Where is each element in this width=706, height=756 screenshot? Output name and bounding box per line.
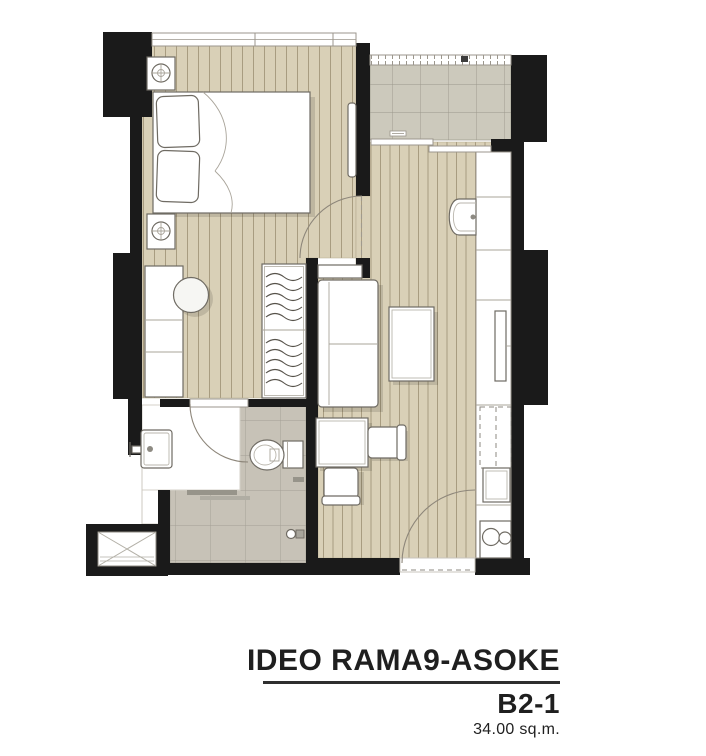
double-bed (153, 92, 315, 217)
window-band (152, 33, 356, 46)
dining-chair (322, 468, 364, 505)
kitchen-sink (449, 199, 476, 235)
coffee-table (389, 307, 438, 385)
wall-right-strip (511, 142, 524, 558)
nightstand (147, 214, 175, 249)
console-shelf (318, 265, 362, 278)
dining-chair (368, 425, 408, 461)
wall-bottom-right-of-entry (475, 558, 530, 575)
wall-shaft-top (86, 524, 168, 532)
wall-bath-top-right (248, 399, 306, 407)
pillow (156, 95, 200, 147)
wall-top-left-block (103, 32, 152, 117)
caption-divider (263, 681, 560, 684)
wall-bath-top-left (160, 399, 190, 407)
sofa (318, 280, 383, 412)
burner-icon (483, 529, 500, 546)
wall-top-right-block (511, 55, 547, 142)
railing-latch-icon (461, 56, 468, 62)
balcony-floor-drain (390, 131, 406, 136)
stove (480, 521, 511, 558)
wall-right-pillar (524, 250, 548, 405)
nightstand (147, 57, 175, 90)
tall-mirror-panel (348, 103, 356, 177)
burner-icon (499, 532, 511, 544)
wall-left-mid-block (113, 253, 142, 399)
wall-bottom-bath (168, 563, 306, 575)
wall-partition (306, 258, 318, 563)
wall-shaft-bottom (86, 566, 168, 576)
wall-bottom-left-of-entry (306, 558, 400, 575)
dining-table (316, 418, 372, 471)
floor-plan-page: IDEO RAMA9-ASOKE B2-1 34.00 sq.m. (0, 0, 706, 756)
unit-code: B2-1 (247, 689, 560, 718)
unit-area: 34.00 sq.m. (247, 721, 560, 739)
caption: IDEO RAMA9-ASOKE B2-1 34.00 sq.m. (247, 644, 560, 739)
balcony-floor (370, 62, 511, 140)
project-name: IDEO RAMA9-ASOKE (247, 644, 560, 677)
ac-ledge (98, 532, 156, 566)
built-in-oven (483, 468, 510, 502)
wall-left-strip (130, 117, 142, 253)
balcony-railing (370, 55, 511, 65)
floor-plan (0, 0, 706, 756)
wardrobe (262, 264, 306, 398)
wall-bedroom-right (356, 43, 370, 196)
pillow (156, 150, 200, 202)
toilet (250, 440, 303, 470)
